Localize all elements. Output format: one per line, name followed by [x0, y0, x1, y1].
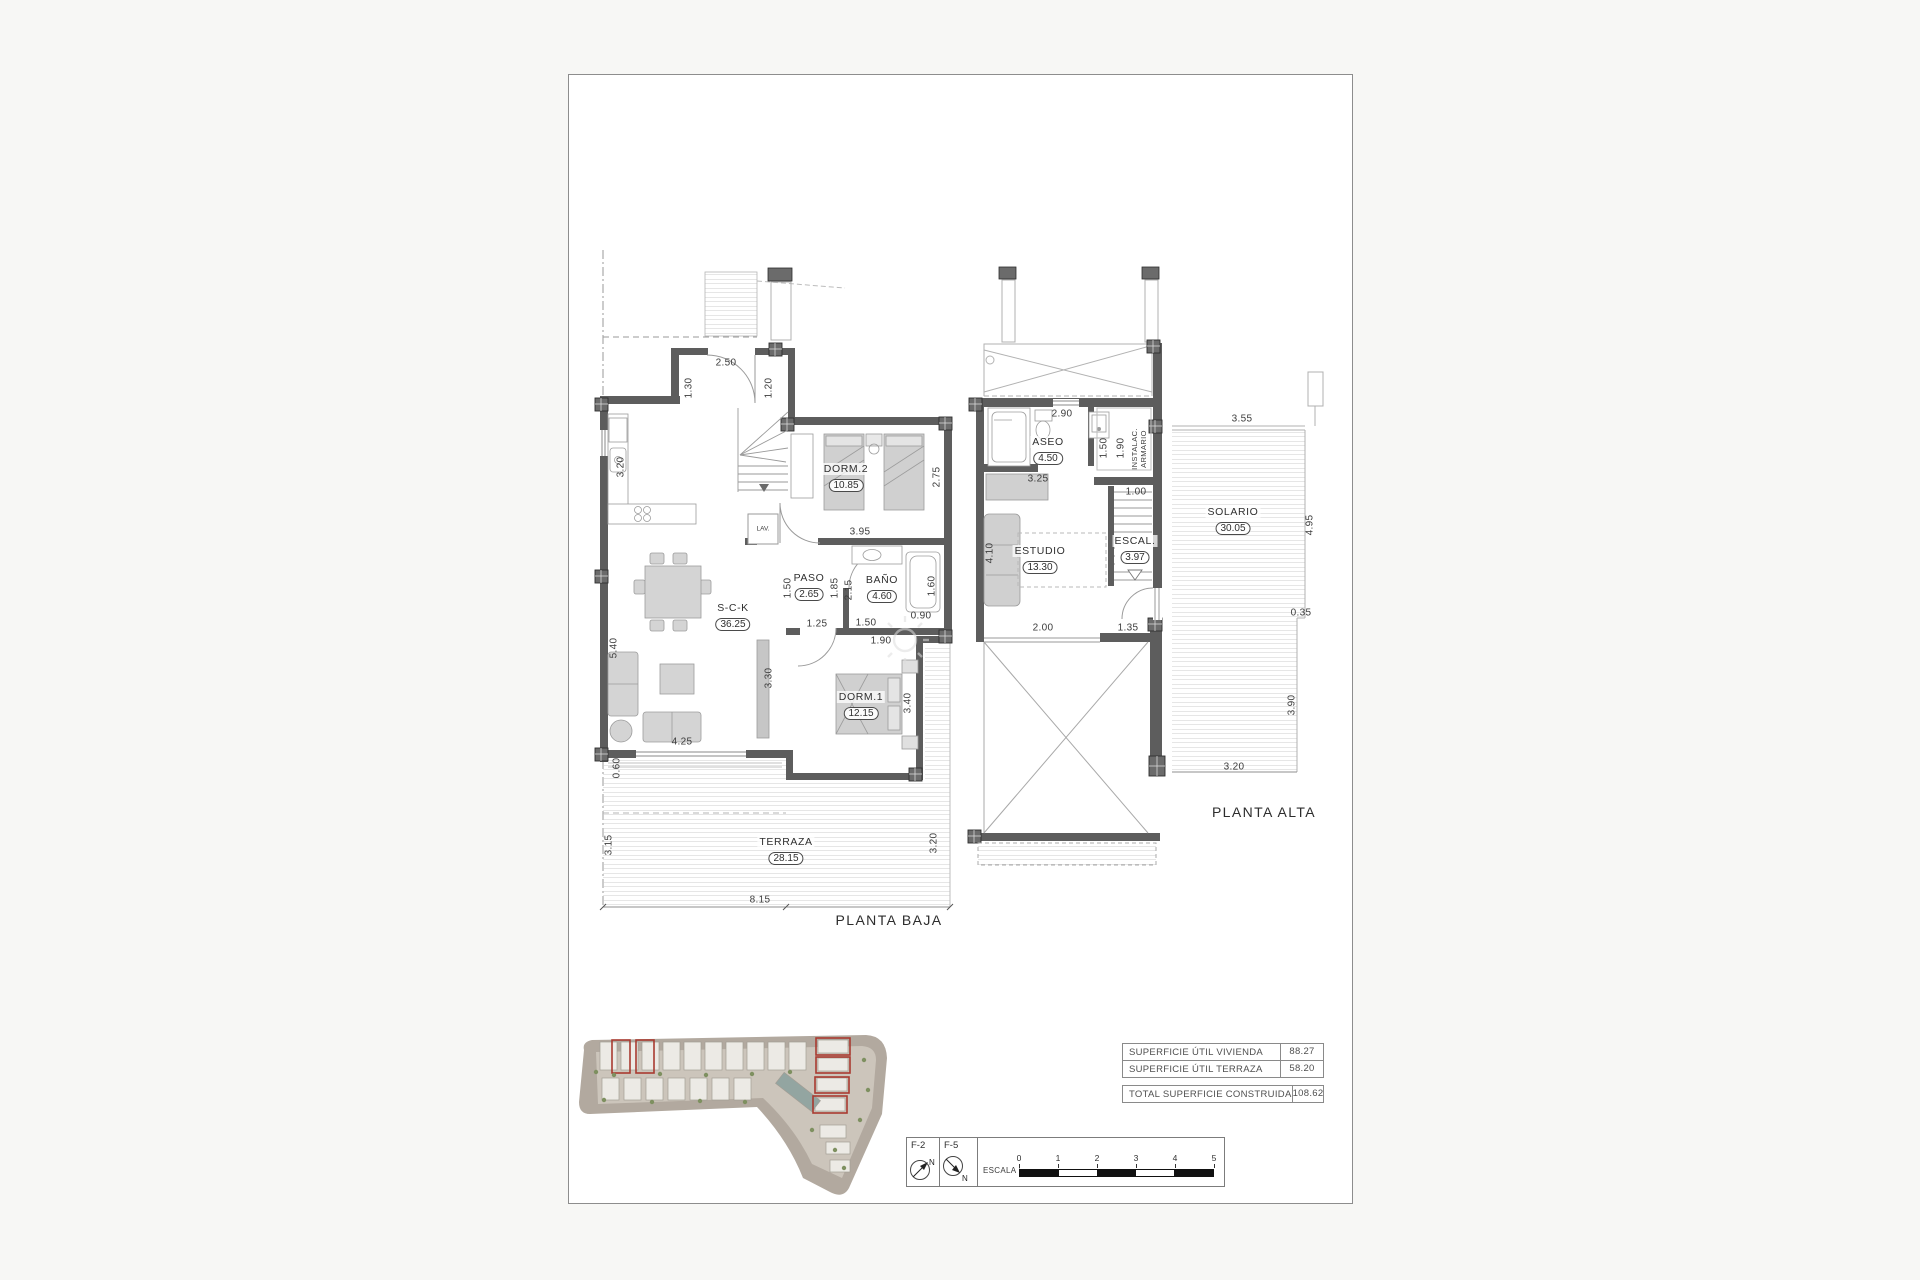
room-name: BAÑO — [864, 574, 900, 586]
room-area: 30.05 — [1215, 522, 1250, 535]
row-value: 108.62 — [1292, 1086, 1324, 1102]
dim-label: 0.90 — [911, 611, 932, 622]
solario-hatch — [1172, 372, 1323, 772]
scale-tick-label: 4 — [1173, 1153, 1178, 1163]
compass-box-f5: F-5 N — [939, 1137, 979, 1187]
room-area: 10.85 — [828, 479, 863, 492]
room-area: 36.25 — [715, 618, 750, 631]
room-label-paso: PASO 2.65 — [792, 572, 827, 602]
scale-tick — [1058, 1164, 1059, 1168]
dim-label: 4.25 — [672, 737, 693, 748]
scale-tick — [1097, 1164, 1098, 1168]
row-label: SUPERFICIE ÚTIL TERRAZA — [1123, 1064, 1280, 1075]
site-plan — [572, 1028, 912, 1208]
compass-f2-icon: N — [907, 1153, 940, 1185]
compass-box-f2: F-2 N — [906, 1137, 941, 1187]
room-area: 28.15 — [768, 852, 803, 865]
dim-label: 3.40 — [903, 693, 914, 714]
dim-label: 3.30 — [764, 668, 775, 689]
room-name: PASO — [792, 572, 827, 584]
dim-label: 4.10 — [985, 543, 996, 564]
laundry-label: LAV. — [756, 526, 769, 533]
dim-label: 8.15 — [750, 895, 771, 906]
scale-tick-label: 1 — [1056, 1153, 1061, 1163]
scale-tick — [1019, 1164, 1020, 1168]
estudio-sofa-icon — [984, 474, 1048, 606]
room-area: 3.97 — [1120, 551, 1149, 564]
scale-tick-label: 2 — [1095, 1153, 1100, 1163]
room-label-aseo: ASEO 4.50 — [1030, 436, 1066, 466]
scale-box: ESCALA : 0 1 2 3 4 5 — [977, 1137, 1225, 1187]
parapet-walls — [999, 267, 1159, 342]
scale-tick-label: 5 — [1212, 1153, 1217, 1163]
window — [1053, 399, 1079, 408]
room-label-solario: SOLARIO 30.05 — [1206, 506, 1261, 536]
dining-table-icon — [634, 553, 711, 631]
plan-title-alta: PLANTA ALTA — [1212, 804, 1316, 820]
room-name: ASEO — [1030, 436, 1066, 448]
dim-label: 5.40 — [609, 638, 620, 659]
dim-label: 1.50 — [856, 618, 877, 629]
row-value: 88.27 — [1280, 1044, 1323, 1060]
party-wall — [771, 282, 791, 340]
dim-label: 1.90 — [871, 636, 892, 647]
row-value: 58.20 — [1280, 1061, 1323, 1077]
floor-plan-baja-drawing — [560, 240, 980, 940]
dim-label: 4.95 — [1305, 515, 1316, 536]
svg-text:N: N — [929, 1158, 935, 1167]
compass-label: F-5 — [944, 1140, 958, 1151]
room-label-escal: ESCAL. 3.97 — [1113, 535, 1158, 565]
room-name: TERRAZA — [757, 836, 814, 848]
sofa-icons — [608, 640, 769, 742]
dim-label: 0.60 — [612, 758, 623, 779]
interior-stair-icon — [738, 408, 788, 492]
exterior-stair-icon — [705, 272, 757, 336]
dim-label: 1.35 — [1118, 623, 1139, 634]
room-label-terraza: TERRAZA 28.15 — [757, 836, 814, 866]
dim-label: 1.00 — [1126, 487, 1147, 498]
instalac-line1: INSTALAC. — [1130, 428, 1139, 470]
room-label-dorm1: DORM.1 12.15 — [837, 691, 885, 721]
dim-label: 1.90 — [1116, 438, 1127, 459]
dim-label: 1.85 — [830, 578, 841, 599]
dim-label: 0.35 — [1291, 608, 1312, 619]
room-label-bano: BAÑO 4.60 — [864, 574, 900, 604]
table-row: TOTAL SUPERFICIE CONSTRUIDA 108.62 — [1123, 1086, 1323, 1102]
room-name: ESCAL. — [1113, 535, 1158, 547]
row-label: TOTAL SUPERFICIE CONSTRUIDA — [1123, 1089, 1292, 1100]
room-area: 4.60 — [867, 590, 896, 603]
scale-segment — [1059, 1170, 1098, 1176]
compass-label: F-2 — [911, 1140, 925, 1151]
floor-plan-alta-drawing — [955, 250, 1340, 900]
instalac-label: INSTALAC. ARMARIO — [1130, 428, 1148, 470]
column — [768, 268, 792, 281]
dim-label: 1.25 — [807, 619, 828, 630]
room-label-estudio: ESTUDIO 13.30 — [1013, 545, 1068, 575]
scale-tick — [1175, 1164, 1176, 1168]
dim-label: 2.00 — [1033, 623, 1054, 634]
scale-segment — [1097, 1170, 1136, 1176]
scale-tick-label: 0 — [1017, 1153, 1022, 1163]
dim-label: 3.90 — [1287, 695, 1298, 716]
compass-f5-icon: N — [940, 1152, 978, 1186]
dim-label: 3.20 — [616, 457, 627, 478]
dim-label: 3.15 — [604, 835, 615, 856]
dim-label: 3.20 — [1224, 762, 1245, 773]
room-name: SOLARIO — [1206, 506, 1261, 518]
instalac-line2: ARMARIO — [1139, 428, 1148, 470]
dim-label: 1.50 — [1099, 438, 1110, 459]
room-area: 12.15 — [843, 707, 878, 720]
dim-label: 2.75 — [932, 467, 943, 488]
svg-text:N: N — [962, 1174, 968, 1183]
table-row: SUPERFICIE ÚTIL VIVIENDA 88.27 — [1123, 1044, 1323, 1060]
dim-label: 2.15 — [844, 580, 855, 601]
dim-label: 1.20 — [764, 378, 775, 399]
room-name: DORM.2 — [822, 463, 870, 475]
room-name: DORM.1 — [837, 691, 885, 703]
blueprint-page: 2.50 1.30 1.20 3.20 2.75 3.95 1.50 1.85 … — [0, 0, 1920, 1280]
table-row: SUPERFICIE ÚTIL TERRAZA 58.20 — [1123, 1060, 1323, 1077]
room-label-dorm2: DORM.2 10.85 — [822, 463, 870, 493]
scale-tick — [1136, 1164, 1137, 1168]
surface-total-table: TOTAL SUPERFICIE CONSTRUIDA 108.62 — [1122, 1085, 1324, 1103]
room-name: ESTUDIO — [1013, 545, 1068, 557]
dim-label: 3.95 — [850, 527, 871, 538]
plan-title-baja: PLANTA BAJA — [836, 912, 943, 928]
dim-label: 3.25 — [1028, 474, 1049, 485]
room-area: 2.65 — [794, 588, 823, 601]
surface-summary-table: SUPERFICIE ÚTIL VIVIENDA 88.27 SUPERFICI… — [1122, 1043, 1324, 1078]
dim-label: 2.90 — [1052, 409, 1073, 420]
row-label: SUPERFICIE ÚTIL VIVIENDA — [1123, 1047, 1280, 1058]
scale-tick — [1214, 1164, 1215, 1168]
scale-segment — [1174, 1170, 1213, 1176]
room-name: S-C-K — [715, 602, 751, 614]
scale-segment — [1136, 1170, 1175, 1176]
room-area: 4.50 — [1033, 452, 1062, 465]
scale-segment — [1020, 1170, 1059, 1176]
scale-bar — [1019, 1169, 1214, 1177]
dim-label: 3.20 — [929, 833, 940, 854]
dim-label: 3.55 — [1232, 414, 1253, 425]
dim-label: 2.50 — [716, 358, 737, 369]
scale-label: ESCALA : — [983, 1166, 1021, 1175]
scale-tick-label: 3 — [1134, 1153, 1139, 1163]
dim-label: 1.60 — [927, 576, 938, 597]
room-label-sck: S-C-K 36.25 — [715, 602, 751, 632]
room-area: 13.30 — [1022, 561, 1057, 574]
roof-slope — [984, 344, 1152, 396]
dim-label: 1.30 — [684, 378, 695, 399]
